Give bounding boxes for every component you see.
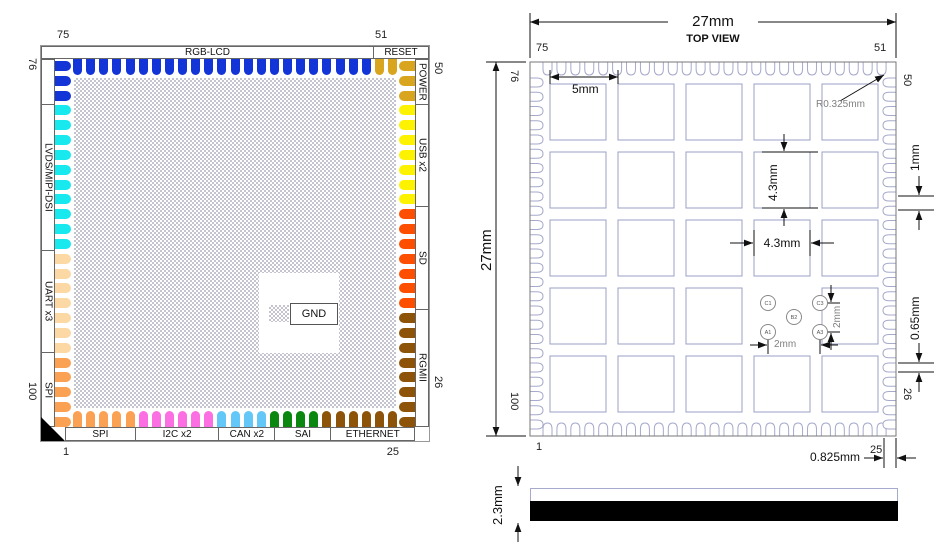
castellation-bottom — [794, 423, 803, 436]
dim-pitch-label: 5mm — [572, 82, 599, 96]
castellation-top — [821, 63, 830, 76]
castellation-left — [531, 278, 544, 287]
gnd-pattern-swatch — [269, 305, 289, 322]
pin-rgmii — [399, 372, 415, 382]
pin-rgb-lcd — [55, 76, 71, 86]
fiducial-label: B2 — [791, 315, 798, 321]
pin-can-x2 — [244, 411, 253, 427]
pin-group-blank — [41, 59, 55, 105]
castellation-top — [557, 63, 566, 76]
tv-pin-76: 76 — [508, 70, 520, 82]
pin-group-label: LVDS/MIPI-DSI — [43, 143, 54, 212]
pin-rgb-lcd — [178, 59, 187, 75]
pin-sai — [283, 411, 292, 427]
dim-width-label: 27mm — [668, 13, 758, 30]
castellation-left — [531, 292, 544, 301]
pin-rgb-lcd — [309, 59, 318, 75]
pin-rgmii — [399, 313, 415, 323]
pin-group-label: CAN x2 — [230, 429, 264, 440]
castellation-top — [654, 63, 663, 76]
pin-lvds-mipi-dsi — [55, 180, 71, 190]
dim-fiducial-v-label: 2mm — [832, 301, 843, 333]
castellation-right — [883, 392, 896, 401]
pin-group-label: RESET — [384, 47, 417, 58]
pin-group-label: USB x2 — [417, 138, 428, 172]
pin-group-label: SPI — [92, 429, 108, 440]
pin-spi — [99, 411, 108, 427]
pin-sai — [309, 411, 318, 427]
pin-group-spi: SPI — [65, 427, 136, 441]
pin-ethernet — [349, 411, 358, 427]
castellation-bottom — [627, 423, 636, 436]
pin-lvds-mipi-dsi — [55, 105, 71, 115]
castellation-bottom — [682, 423, 691, 436]
pin-group-reset: RESET — [373, 46, 429, 59]
pin-rgb-lcd — [191, 59, 200, 75]
castellation-top — [863, 63, 872, 76]
pin-usb-x2 — [399, 135, 415, 145]
pin-group-label: I2C x2 — [163, 429, 192, 440]
pin-rgmii — [399, 358, 415, 368]
castellation-left — [531, 178, 544, 187]
castellation-right — [883, 263, 896, 272]
pin-column-right — [399, 61, 415, 427]
pin-usb-x2 — [399, 120, 415, 130]
castellation-bottom — [696, 423, 705, 436]
castellation-left — [531, 135, 544, 144]
castellation-bottom — [766, 423, 775, 436]
pin-power — [399, 61, 415, 71]
castellation-bottom — [863, 423, 872, 436]
pin-rgb-lcd — [296, 59, 305, 75]
castellation-top — [724, 63, 733, 76]
pin-rgb-lcd — [112, 59, 121, 75]
pin-column-left — [55, 61, 71, 427]
castellation-left — [531, 420, 544, 429]
pin-rgb-lcd — [349, 59, 358, 75]
pin-group-label: SPI — [43, 382, 54, 398]
pin-usb-x2 — [399, 150, 415, 160]
castellation-left — [531, 92, 544, 101]
pin-rgb-lcd — [204, 59, 213, 75]
fiducial-label: C3 — [816, 301, 823, 307]
mechanical-drawing: C1C3B2A1A3 27mm TOP VIEW 75 51 1 25 76 1… — [478, 0, 950, 552]
pin-group-rgb-lcd: RGB-LCD — [41, 46, 374, 59]
pin-rgmii — [399, 343, 415, 353]
pin-group-i2c-x2: I2C x2 — [135, 427, 220, 441]
drawing-linework: C1C3B2A1A3 — [478, 0, 950, 552]
castellation-bottom — [738, 423, 747, 436]
castellation-bottom — [849, 423, 858, 436]
castellation-right — [883, 135, 896, 144]
pin-group-label: RGB-LCD — [185, 47, 230, 58]
castellation-top — [640, 63, 649, 76]
pin-group-label: ETHERNET — [346, 429, 400, 440]
castellation-top — [807, 63, 816, 76]
pin-uart-x3 — [55, 313, 71, 323]
dim-height-label: 27mm — [478, 207, 495, 293]
module-outline — [530, 62, 896, 436]
pin-sd — [399, 209, 415, 219]
tv-pin-26: 26 — [901, 388, 913, 400]
pin-rgb-lcd — [217, 59, 226, 75]
castellation-left — [531, 78, 544, 87]
pin-spi — [55, 402, 71, 412]
castellation-left — [531, 320, 544, 329]
dim-pin-pitch-label: 1mm — [908, 140, 922, 176]
castellation-bottom — [543, 423, 552, 436]
pin-number-75: 75 — [57, 29, 69, 41]
pin-sd — [399, 254, 415, 264]
pin-group-strip-left: LVDS/MIPI-DSIUART x3SPI — [41, 59, 55, 427]
pin-group-label: UART x3 — [43, 281, 54, 321]
pin-rgmii — [399, 417, 415, 427]
castellation-bottom — [724, 423, 733, 436]
pin-rgb-lcd — [99, 59, 108, 75]
pin-group-strip-bottom: SPII2C x2CAN x2SAIETHERNET — [65, 427, 415, 441]
pin-ethernet — [362, 411, 371, 427]
pin-sd — [399, 224, 415, 234]
pin-lvds-mipi-dsi — [55, 150, 71, 160]
pin-rgb-lcd — [322, 59, 331, 75]
pin-spi — [86, 411, 95, 427]
castellation-left — [531, 206, 544, 215]
castellation-right — [883, 206, 896, 215]
pin-usb-x2 — [399, 194, 415, 204]
pin-spi — [55, 372, 71, 382]
castellation-left — [531, 164, 544, 173]
castellation-right — [883, 377, 896, 386]
pin-uart-x3 — [55, 283, 71, 293]
pin-row-top — [73, 59, 397, 75]
pin-spi — [55, 387, 71, 397]
side-view-pcb — [530, 488, 898, 502]
pin-usb-x2 — [399, 105, 415, 115]
pin-lvds-mipi-dsi — [55, 209, 71, 219]
castellation-top — [752, 63, 761, 76]
castellation-right — [883, 335, 896, 344]
module-pinout-diagram: 75 51 1 25 76 100 50 26 RGB-LCDRESET SPI… — [40, 45, 430, 442]
pin-lvds-mipi-dsi — [55, 120, 71, 130]
pin-sd — [399, 239, 415, 249]
castellation-bottom — [710, 423, 719, 436]
pin-group-strip-top: RGB-LCDRESET — [41, 46, 429, 59]
pin-group-can-x2: CAN x2 — [218, 427, 275, 441]
pin-spi — [55, 358, 71, 368]
dim-pad-width-label: 4.3mm — [757, 236, 807, 250]
pin-rgb-lcd — [336, 59, 345, 75]
pin-sd — [399, 283, 415, 293]
castellation-left — [531, 221, 544, 230]
pin-uart-x3 — [55, 328, 71, 338]
castellation-right — [883, 149, 896, 158]
castellation-top — [849, 63, 858, 76]
top-view-title: TOP VIEW — [638, 33, 788, 45]
gnd-legend: GND — [259, 273, 339, 353]
tv-pin-75: 75 — [536, 42, 548, 54]
castellation-top — [668, 63, 677, 76]
castellation-left — [531, 263, 544, 272]
pin-row-bottom — [73, 411, 397, 427]
pin-number-26: 26 — [432, 376, 444, 388]
dim-pad-height-label: 4.3mm — [766, 156, 780, 210]
castellation-left — [531, 377, 544, 386]
pin-number-51: 51 — [375, 29, 387, 41]
castellation-right — [883, 121, 896, 130]
tv-pin-1: 1 — [536, 441, 542, 453]
pin-i2c-x2 — [165, 411, 174, 427]
castellation-top — [835, 63, 844, 76]
pin-group-sd: SD — [415, 206, 429, 310]
pin-rgmii — [399, 402, 415, 412]
pin-uart-x3 — [55, 254, 71, 264]
castellation-right — [883, 292, 896, 301]
castellation-right — [883, 306, 896, 315]
pin-group-ethernet: ETHERNET — [330, 427, 415, 441]
castellation-right — [883, 178, 896, 187]
pin-can-x2 — [231, 411, 240, 427]
pin-i2c-x2 — [191, 411, 200, 427]
castellation-right — [883, 349, 896, 358]
castellation-right — [883, 278, 896, 287]
castellation-bottom — [613, 423, 622, 436]
castellation-bottom — [821, 423, 830, 436]
pin-rgb-lcd — [73, 59, 82, 75]
castellation-right — [883, 420, 896, 429]
castellation-top — [696, 63, 705, 76]
pin-sd — [399, 269, 415, 279]
pin-rgb-lcd — [152, 59, 161, 75]
pin-group-lvds-mipi-dsi: LVDS/MIPI-DSI — [41, 104, 55, 251]
pin-rgb-lcd — [165, 59, 174, 75]
castellation-top — [585, 63, 594, 76]
pin-uart-x3 — [55, 298, 71, 308]
pin-power — [399, 91, 415, 101]
castellation-top — [543, 63, 552, 76]
pin-group-spi: SPI — [41, 352, 55, 427]
pin-rgb-lcd — [362, 59, 371, 75]
pin-lvds-mipi-dsi — [55, 135, 71, 145]
pin1-corner-marker — [41, 417, 65, 441]
castellation-left — [531, 249, 544, 258]
castellation-right — [883, 320, 896, 329]
castellation-bottom — [668, 423, 677, 436]
pin-group-rgmii: RGMII — [415, 309, 429, 427]
pin-i2c-x2 — [178, 411, 187, 427]
castellation-left — [531, 235, 544, 244]
pin-power — [399, 76, 415, 86]
pin-i2c-x2 — [139, 411, 148, 427]
castellation-bottom — [752, 423, 761, 436]
dim-corner-radius-label: R0.325mm — [816, 99, 865, 110]
pin-rgb-lcd — [55, 61, 71, 71]
pin-rgb-lcd — [244, 59, 253, 75]
castellation-right — [883, 192, 896, 201]
castellation-right — [883, 107, 896, 116]
pin-i2c-x2 — [204, 411, 213, 427]
pin-lvds-mipi-dsi — [55, 194, 71, 204]
pin-ethernet — [322, 411, 331, 427]
castellation-top — [571, 63, 580, 76]
pin-ethernet — [388, 411, 397, 427]
castellation-left — [531, 363, 544, 372]
pin-lvds-mipi-dsi — [55, 165, 71, 175]
castellation-top — [627, 63, 636, 76]
pin-number-76: 76 — [26, 58, 38, 70]
castellation-top — [682, 63, 691, 76]
castellation-left — [531, 335, 544, 344]
pin-spi — [73, 411, 82, 427]
castellation-bottom — [571, 423, 580, 436]
castellation-right — [883, 78, 896, 87]
pin-sai — [270, 411, 279, 427]
pin-group-sai: SAI — [274, 427, 331, 441]
castellation-top — [766, 63, 775, 76]
pin-number-50: 50 — [432, 62, 444, 74]
castellation-top — [738, 63, 747, 76]
fiducial-label: A1 — [765, 330, 772, 336]
tv-pin-25: 25 — [870, 444, 882, 456]
castellation-bottom — [640, 423, 649, 436]
pin-can-x2 — [257, 411, 266, 427]
castellation-bottom — [599, 423, 608, 436]
castellation-top — [794, 63, 803, 76]
castellation-bottom — [807, 423, 816, 436]
castellation-bottom — [835, 423, 844, 436]
castellation-left — [531, 192, 544, 201]
tv-pin-50: 50 — [901, 74, 913, 86]
pin-group-uart-x3: UART x3 — [41, 250, 55, 354]
pin-usb-x2 — [399, 180, 415, 190]
pin-rgb-lcd — [139, 59, 148, 75]
pin-group-label: POWER — [417, 63, 428, 101]
pin-group-label: SD — [417, 251, 428, 265]
gnd-label: GND — [290, 303, 338, 325]
pin-ethernet — [336, 411, 345, 427]
pin-rgb-lcd — [231, 59, 240, 75]
pin-i2c-x2 — [152, 411, 161, 427]
pin-rgb-lcd — [86, 59, 95, 75]
pin-usb-x2 — [399, 165, 415, 175]
pin-rgb-lcd — [55, 91, 71, 101]
castellation-left — [531, 306, 544, 315]
pin-uart-x3 — [55, 343, 71, 353]
castellation-right — [883, 92, 896, 101]
pin-uart-x3 — [55, 269, 71, 279]
castellation-right — [883, 164, 896, 173]
pin-group-usb-x2: USB x2 — [415, 104, 429, 208]
fiducial-label: A3 — [817, 330, 824, 336]
castellation-top — [877, 63, 886, 76]
castellation-right — [883, 406, 896, 415]
pin-group-power: POWER — [415, 59, 429, 105]
pin-number-25: 25 — [387, 446, 399, 458]
castellation-left — [531, 121, 544, 130]
castellation-left — [531, 406, 544, 415]
pin-rgb-lcd — [270, 59, 279, 75]
castellation-bottom — [585, 423, 594, 436]
pin-group-strip-right: POWERUSB x2SDRGMII — [415, 59, 429, 427]
castellation-bottom — [654, 423, 663, 436]
page: { "pinout": { "center_label": "GND", "nu… — [0, 0, 950, 552]
pin-group-label: SAI — [295, 429, 311, 440]
pin-number-1: 1 — [63, 446, 69, 458]
pin-lvds-mipi-dsi — [55, 224, 71, 234]
castellation-bottom — [780, 423, 789, 436]
pin-number-100: 100 — [26, 382, 38, 400]
pin-ethernet — [375, 411, 384, 427]
dim-pin-width-label: 0.65mm — [908, 294, 922, 342]
pin-lvds-mipi-dsi — [55, 239, 71, 249]
castellation-left — [531, 107, 544, 116]
ground-plane-area — [74, 78, 396, 408]
pin-rgmii — [399, 328, 415, 338]
pin-reset — [375, 59, 384, 75]
pin-spi — [126, 411, 135, 427]
castellation-right — [883, 235, 896, 244]
pin-group-label: RGMII — [417, 353, 428, 382]
tv-pin-51: 51 — [874, 42, 886, 54]
castellation-right — [883, 221, 896, 230]
pin-spi — [112, 411, 121, 427]
castellation-right — [883, 363, 896, 372]
pin-rgb-lcd — [257, 59, 266, 75]
castellation-left — [531, 149, 544, 158]
pin-rgb-lcd — [126, 59, 135, 75]
castellation-top — [710, 63, 719, 76]
castellation-top — [613, 63, 622, 76]
castellation-top — [599, 63, 608, 76]
dim-thickness-label: 2.3mm — [490, 483, 505, 527]
pin-sai — [296, 411, 305, 427]
castellation-bottom — [557, 423, 566, 436]
pin-sd — [399, 298, 415, 308]
castellation-top — [780, 63, 789, 76]
pin-can-x2 — [217, 411, 226, 427]
fiducial-label: C1 — [764, 301, 771, 307]
tv-pin-100: 100 — [508, 392, 520, 410]
pin-reset — [388, 59, 397, 75]
castellation-right — [883, 249, 896, 258]
pin-rgmii — [399, 387, 415, 397]
dim-fiducial-h-label: 2mm — [774, 339, 796, 350]
side-view-body — [530, 501, 898, 521]
castellation-left — [531, 392, 544, 401]
pin-rgb-lcd — [283, 59, 292, 75]
dim-edge-offset-label: 0.825mm — [778, 450, 860, 464]
castellation-left — [531, 349, 544, 358]
